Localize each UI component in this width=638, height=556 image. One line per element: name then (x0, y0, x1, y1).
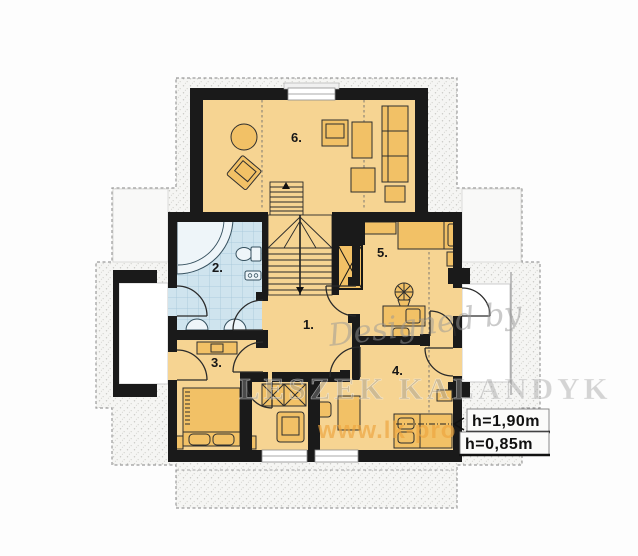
side-table (352, 122, 372, 158)
floor-plan-page: 1. 2. 3. 4. 5. 6. Designed by LESZEK KAL… (0, 0, 638, 556)
double-bed (183, 388, 240, 446)
terrace-left (113, 189, 168, 262)
round-table (231, 124, 257, 150)
toilet-icon (236, 248, 252, 261)
room-label-5: 5. (377, 245, 388, 260)
watermark-website: www.lk-pro (317, 417, 456, 444)
height-label-lower: h=0,85m (465, 436, 533, 453)
coffee-table (351, 168, 375, 192)
watermark-author: LESZEK KALANDYK (239, 371, 612, 406)
bed (398, 221, 460, 249)
room-label-2: 2. (212, 260, 223, 275)
sofa (382, 106, 408, 182)
room-label-6: 6. (291, 130, 302, 145)
armchair (277, 412, 304, 442)
shelf (362, 222, 396, 234)
footstool (385, 186, 405, 202)
room-label-1: 1. (303, 317, 314, 332)
floor-plan: 1. 2. 3. 4. 5. 6. Designed by LESZEK KAL… (0, 0, 638, 556)
terrace-right (462, 189, 521, 262)
room-label-3: 3. (211, 355, 222, 370)
balcony-left (113, 270, 168, 397)
bidet-icon (245, 271, 261, 280)
height-label-upper: h=1,90m (472, 413, 540, 430)
